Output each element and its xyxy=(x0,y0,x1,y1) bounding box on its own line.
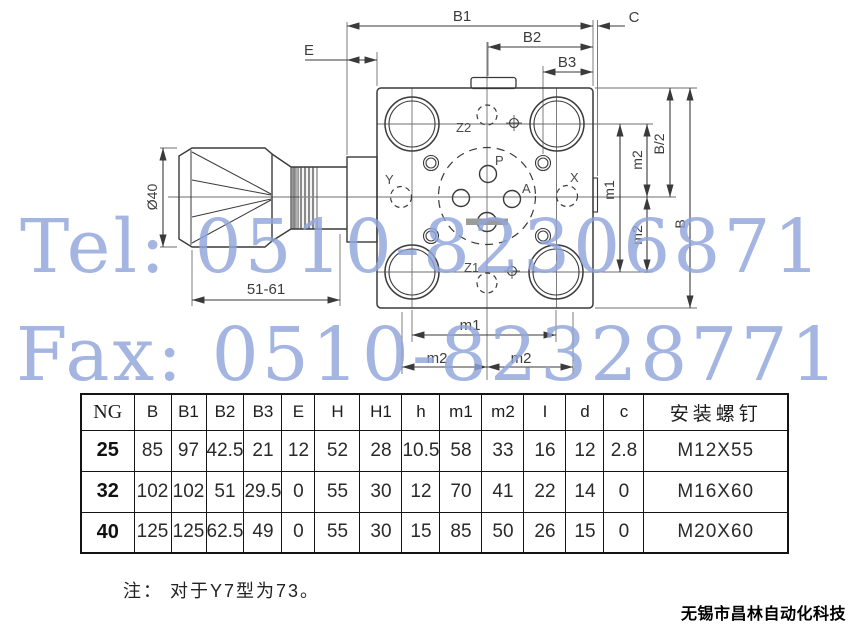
dim-label-dia40: Ø40 xyxy=(144,184,160,211)
mounting-holes xyxy=(385,97,584,299)
datasheet-page: Z2 P A Y X Z1 B1 xyxy=(0,0,850,634)
port-label-z2: Z2 xyxy=(456,120,471,135)
dimension-labels: B1 C B2 B3 E Ø40 51-61 m1 m2 m2 B/2 B m1… xyxy=(144,8,688,367)
port-label-a: A xyxy=(522,181,531,196)
dim-label-c: C xyxy=(629,9,640,26)
dim-label-m2-right-bottom: m2 xyxy=(629,225,645,245)
table-header-row: NG B B1 B2 B3 E H H1 h m1 m2 I d c 安装螺钉 xyxy=(81,394,788,430)
col-header-h: h xyxy=(402,394,440,430)
valve-side-view xyxy=(179,148,377,247)
col-header-m2: m2 xyxy=(482,394,524,430)
dashed-port-circles xyxy=(391,105,578,293)
dim-label-b1: B1 xyxy=(453,8,471,25)
dim-label-m2-right-top: m2 xyxy=(629,150,645,170)
dim-label-b: B xyxy=(672,219,688,228)
cell-ng: 32 xyxy=(81,471,134,512)
footnote: 注： 对于Y7型为73。 xyxy=(123,577,320,603)
col-header-h1: H1 xyxy=(360,394,402,430)
dim-label-m2-bottom-right: m2 xyxy=(511,350,532,367)
dim-label-b3: B3 xyxy=(558,54,576,71)
dim-label-b-half: B/2 xyxy=(651,133,667,154)
col-header-b1: B1 xyxy=(171,394,206,430)
dimension-table-wrap: NG B B1 B2 B3 E H H1 h m1 m2 I d c 安装螺钉 xyxy=(80,393,789,554)
port-label-x: X xyxy=(570,170,579,185)
col-header-i: I xyxy=(524,394,566,430)
col-header-ng: NG xyxy=(81,394,134,430)
col-header-h-cap: H xyxy=(315,394,360,430)
dim-label-e: E xyxy=(304,42,314,59)
dimension-table: NG B B1 B2 B3 E H H1 h m1 m2 I d c 安装螺钉 xyxy=(80,393,789,554)
port-label-y: Y xyxy=(385,172,394,187)
dim-label-m1-bottom: m1 xyxy=(460,317,481,334)
dim-label-b2: B2 xyxy=(523,29,541,46)
col-header-mounting-screw: 安装螺钉 xyxy=(644,394,788,430)
table-row-ng40: 40 125 125 62.5 49 0 55 30 15 85 50 26 1… xyxy=(81,512,788,553)
table-row-ng25: 25 85 97 42.5 21 12 52 28 10.5 58 33 16 … xyxy=(81,430,788,471)
port-slot-mark xyxy=(466,219,508,226)
col-header-e: E xyxy=(282,394,315,430)
cell-mounting-screw: M20X60 xyxy=(644,512,788,553)
col-header-b: B xyxy=(134,394,171,430)
dim-label-m2-bottom-left: m2 xyxy=(427,350,448,367)
company-name: 无锡市昌林自动化科技 xyxy=(681,600,846,624)
dim-label-51-61: 51-61 xyxy=(247,281,285,298)
col-header-d: d xyxy=(566,394,604,430)
valve-dimension-drawing: Z2 P A Y X Z1 B1 xyxy=(0,0,850,392)
port-label-z1: Z1 xyxy=(464,260,479,275)
col-header-m1: m1 xyxy=(440,394,482,430)
cell-ng: 40 xyxy=(81,512,134,553)
col-header-b3: B3 xyxy=(244,394,282,430)
col-header-b2: B2 xyxy=(206,394,244,430)
cell-mounting-screw: M16X60 xyxy=(644,471,788,512)
table-row-ng32: 32 102 102 51 29.5 0 55 30 12 70 41 22 1… xyxy=(81,471,788,512)
port-label-p: P xyxy=(495,153,504,168)
col-header-c: c xyxy=(604,394,644,430)
dim-label-m1-right: m1 xyxy=(601,180,617,200)
cell-mounting-screw: M12X55 xyxy=(644,430,788,471)
cell-ng: 25 xyxy=(81,430,134,471)
port-labels: Z2 P A Y X Z1 xyxy=(385,120,579,275)
